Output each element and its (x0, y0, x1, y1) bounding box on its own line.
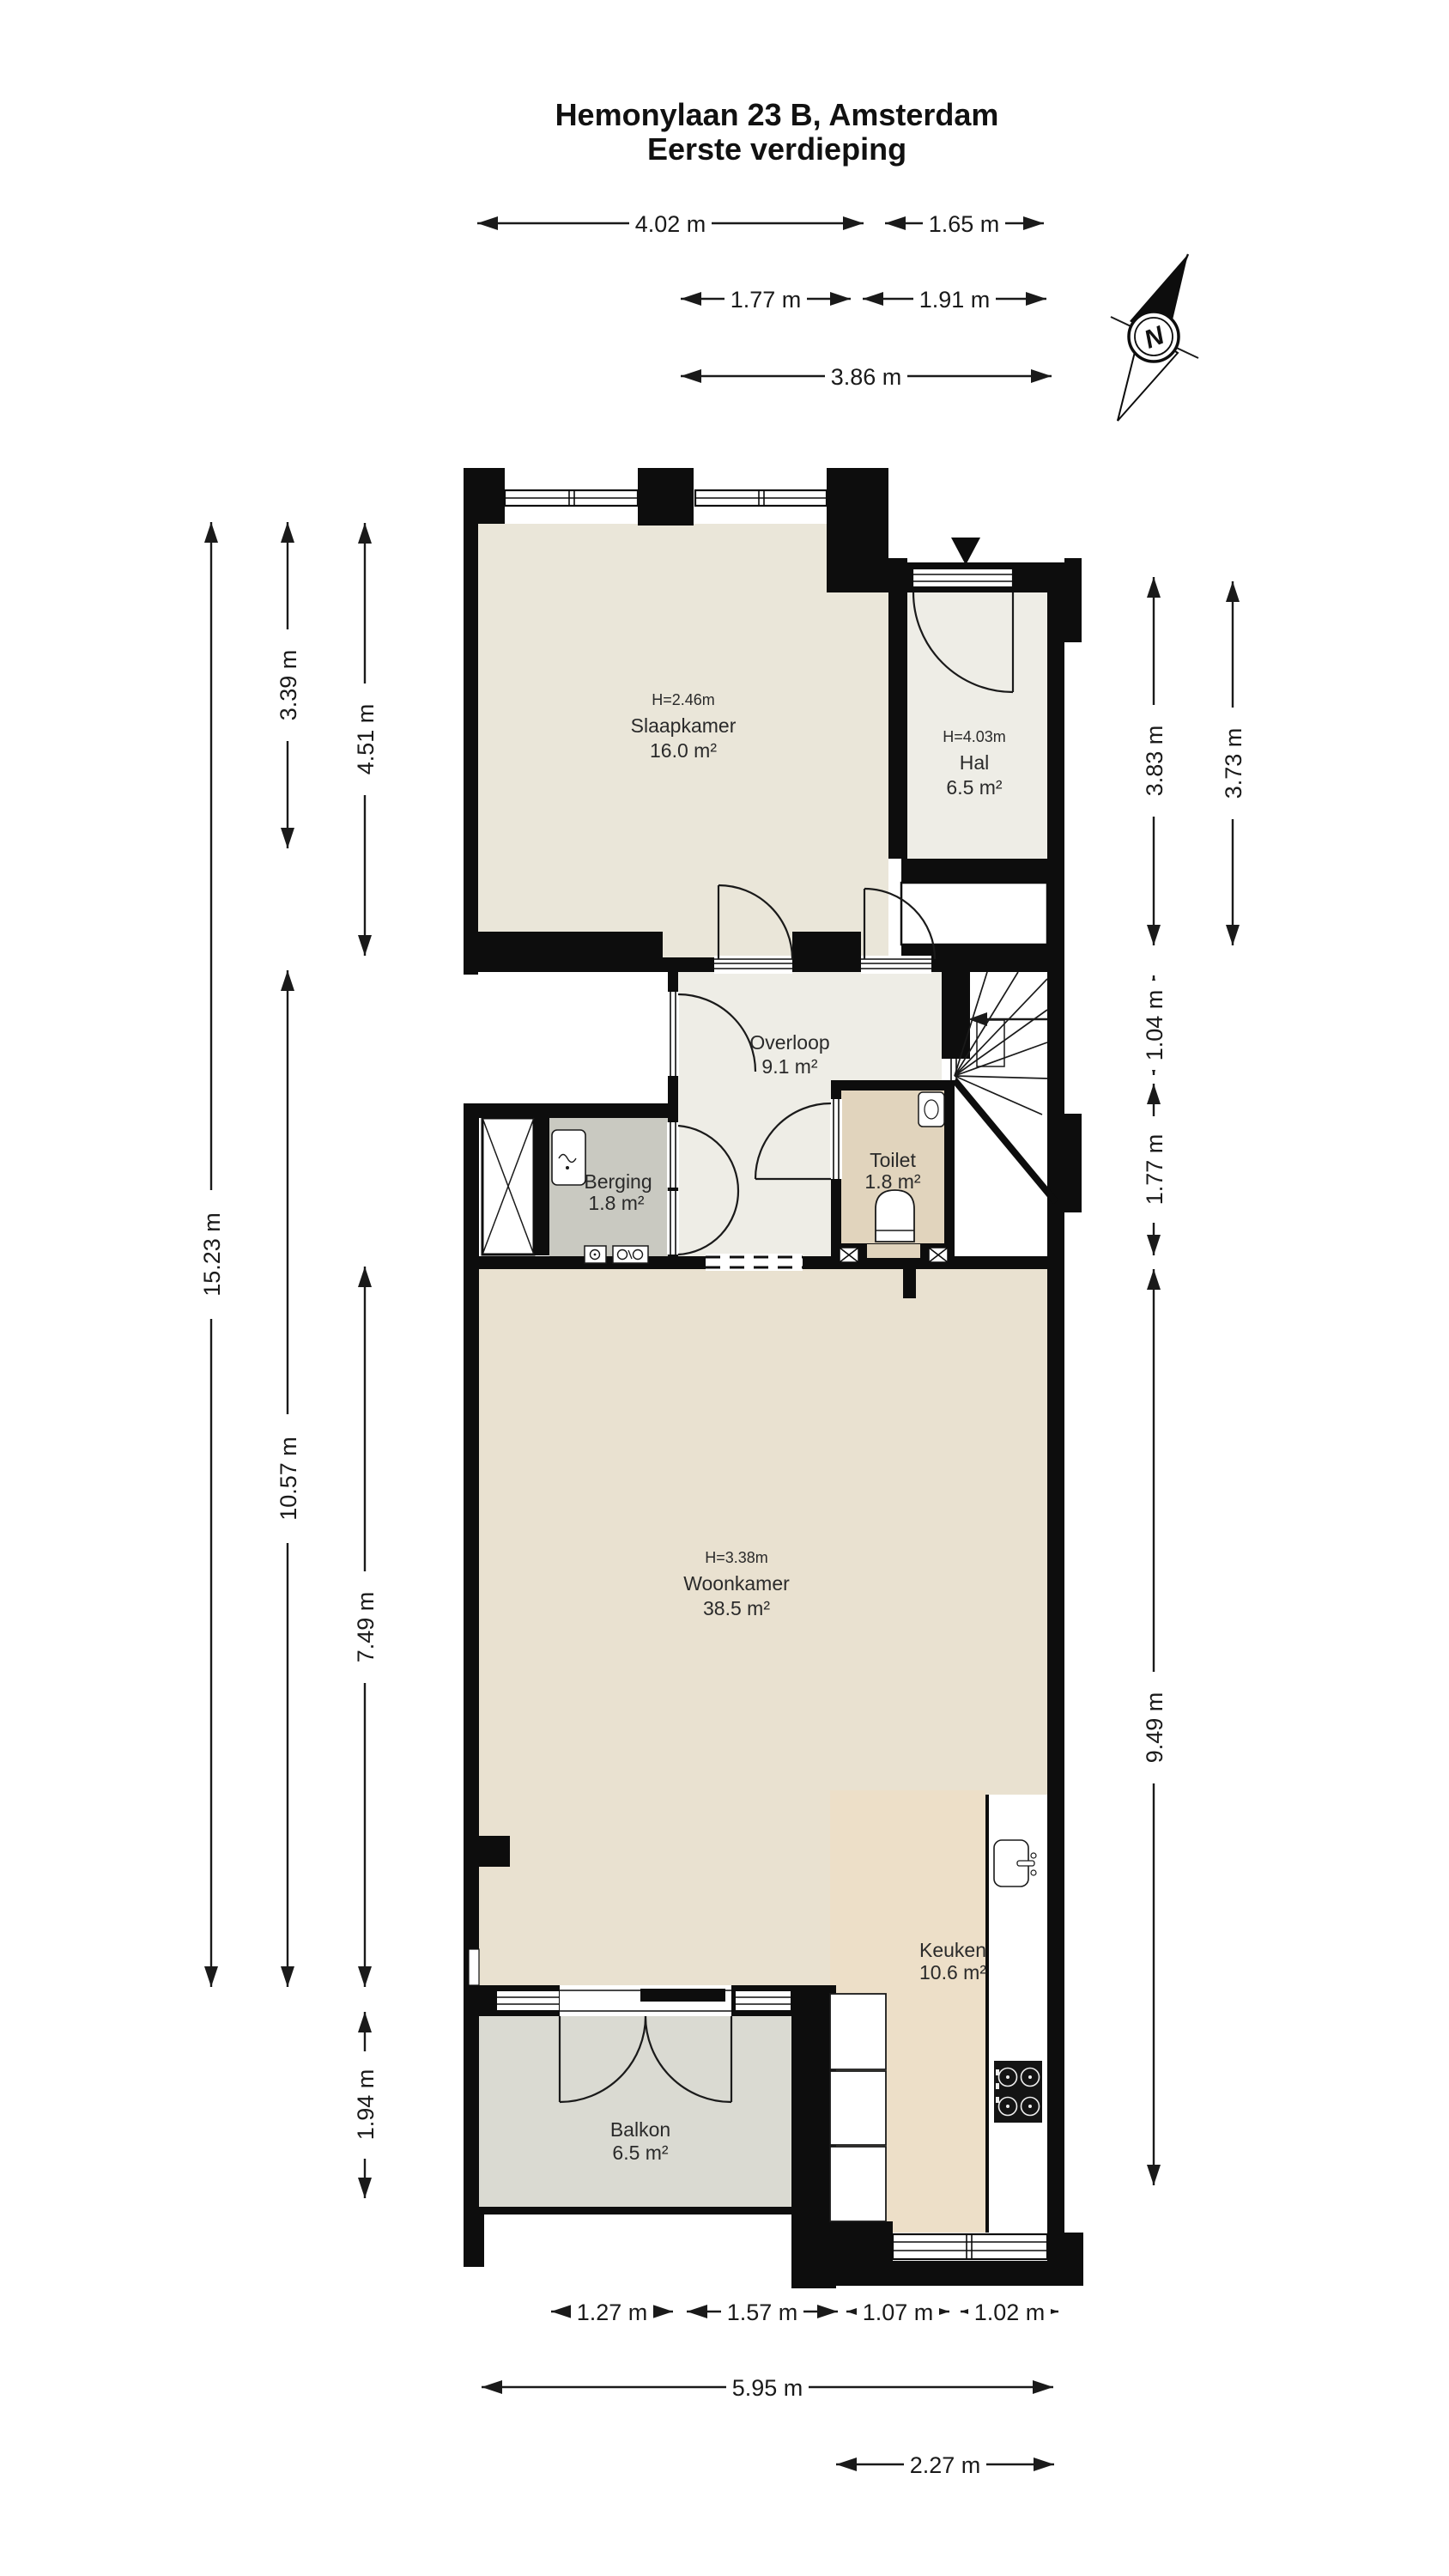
dim-bottom-157: 1.57 m (687, 2298, 838, 2325)
dim-left-339: 3.39 m (274, 522, 301, 848)
wall-stairs-left (942, 972, 970, 1059)
label-keuken: Keuken 10.6 m² (919, 1939, 986, 1984)
wall-balkon-left-stub (464, 2215, 484, 2267)
svg-text:Balkon: Balkon (610, 2118, 670, 2141)
dim-right-949: 9.49 m (1140, 1269, 1167, 2185)
svg-text:Keuken: Keuken (919, 1939, 986, 1961)
duct-marker-left (840, 1248, 858, 1262)
dim-right-383: 3.83 m (1140, 577, 1167, 945)
doorway-threshold-slaapkamer (714, 956, 792, 974)
wall-band-1 (663, 957, 714, 972)
svg-text:3.83 m: 3.83 m (1142, 726, 1167, 797)
balkon-railing (479, 2207, 791, 2215)
wall-slaapkamer-bottom (464, 932, 663, 972)
svg-text:1.65 m: 1.65 m (929, 211, 1000, 237)
wall-pier-mid-window (638, 468, 694, 526)
svg-text:1.27 m: 1.27 m (577, 2300, 648, 2325)
dim-bottom-227: 2.27 m (836, 2451, 1054, 2478)
shaft-icon (482, 1118, 534, 1255)
svg-text:1.8 m²: 1.8 m² (864, 1170, 921, 1193)
room-balkon-floor (479, 2016, 791, 2207)
wall-left-main (464, 1103, 479, 2215)
boiler-icon (552, 1130, 585, 1185)
dim-top-177: 1.77 m (681, 285, 851, 313)
meter-icon-left (585, 1246, 606, 1263)
floorplan-canvas: Hemonylaan 23 B, Amsterdam Eerste verdie… (0, 0, 1449, 2576)
kitchen-cabinets (830, 1994, 886, 2221)
wall-notch-left (469, 1949, 479, 1985)
wall-toilet-right (944, 1080, 955, 1243)
window-slaapkamer-left (505, 490, 638, 506)
stove-icon (994, 2061, 1042, 2123)
svg-text:5.95 m: 5.95 m (732, 2375, 803, 2401)
wall-left-top (464, 468, 478, 975)
dim-left-194: 1.94 m (351, 2012, 379, 2198)
svg-text:4.02 m: 4.02 m (635, 211, 706, 237)
doorway-threshold-hal (861, 956, 931, 974)
svg-text:9.1 m²: 9.1 m² (761, 1055, 818, 1078)
dim-left-451: 4.51 m (351, 523, 379, 956)
dim-left-749: 7.49 m (351, 1267, 379, 1987)
svg-text:6.5 m²: 6.5 m² (612, 2142, 669, 2164)
compass-icon: N (1111, 254, 1198, 421)
dim-right-104: 1.04 m (1140, 975, 1167, 1075)
svg-text:1.91 m: 1.91 m (919, 287, 991, 313)
svg-text:Berging: Berging (584, 1170, 652, 1193)
duct-marker-right (929, 1248, 948, 1262)
window-slaapkamer-right (695, 490, 827, 506)
wall-berging-top (479, 1103, 678, 1118)
wall-shaft-divider (534, 1118, 549, 1255)
meter-icon-right (613, 1246, 648, 1263)
toilet-sink-icon (919, 1092, 944, 1127)
wall-bump-bottomright (1064, 2233, 1083, 2286)
wall-pier-right (827, 468, 888, 592)
balkon-door-opening (560, 1985, 731, 2016)
wall-bottom-band (889, 2261, 1083, 2286)
wall-divider-slaapkamer-hal (888, 558, 907, 859)
svg-text:1.77 m: 1.77 m (1142, 1134, 1167, 1206)
toilet-floor-niche (867, 1244, 920, 1258)
svg-text:38.5 m²: 38.5 m² (703, 1597, 770, 1619)
svg-text:Slaapkamer: Slaapkamer (631, 714, 737, 737)
wall-hal-bottom (901, 859, 1064, 883)
dimensions-right: 3.83 m 3.73 m 1.04 m 1.77 m 9.49 m (1140, 577, 1246, 2185)
wall-bump-topright (1064, 558, 1082, 642)
dim-top-191: 1.91 m (863, 285, 1046, 313)
svg-text:16.0 m²: 16.0 m² (650, 739, 717, 762)
dim-left-1523: 15.23 m (197, 522, 225, 1987)
dim-top-165: 1.65 m (885, 210, 1044, 237)
dimensions-left: 15.23 m 3.39 m 4.51 m 10.57 m 7.49 m (197, 522, 379, 2198)
svg-text:Toilet: Toilet (870, 1149, 916, 1171)
window-hal-entry (912, 568, 1013, 587)
wall-pier-woonkamer-left (479, 1836, 510, 1867)
dim-right-177: 1.77 m (1140, 1084, 1167, 1255)
entrance-arrow-icon (951, 538, 980, 565)
svg-text:1.94 m: 1.94 m (353, 2069, 379, 2141)
dim-top-402: 4.02 m (477, 210, 864, 237)
svg-text:1.8 m²: 1.8 m² (588, 1192, 645, 1214)
wall-toilet-top (831, 1080, 955, 1091)
floorplan-page: Hemonylaan 23 B, Amsterdam Eerste verdie… (0, 0, 1449, 2576)
svg-text:2.27 m: 2.27 m (910, 2452, 981, 2478)
svg-text:1.04 m: 1.04 m (1142, 990, 1167, 1061)
dim-left-1057: 10.57 m (274, 970, 301, 1987)
svg-text:9.49 m: 9.49 m (1142, 1692, 1167, 1764)
dim-bottom-595: 5.95 m (482, 2373, 1053, 2401)
svg-text:H=3.38m: H=3.38m (705, 1549, 768, 1566)
doorway-toilet (830, 1099, 842, 1179)
wall-pier-between-doors (792, 932, 861, 972)
svg-text:1.57 m: 1.57 m (727, 2300, 798, 2325)
svg-text:3.73 m: 3.73 m (1221, 728, 1246, 799)
title-line1: Hemonylaan 23 B, Amsterdam (555, 97, 999, 132)
svg-text:10.6 m²: 10.6 m² (919, 1961, 986, 1984)
window-balkon-west (496, 1990, 560, 2011)
svg-text:Hal: Hal (960, 751, 990, 774)
dim-bottom-127: 1.27 m (551, 2298, 673, 2325)
svg-text:3.86 m: 3.86 m (831, 364, 902, 390)
svg-text:15.23 m: 15.23 m (199, 1212, 225, 1297)
plan-title: Hemonylaan 23 B, Amsterdam Eerste verdie… (555, 97, 999, 167)
svg-text:Woonkamer: Woonkamer (683, 1572, 790, 1595)
wall-stairs-corner (1064, 1114, 1082, 1212)
title-line2: Eerste verdieping (647, 131, 906, 167)
svg-text:3.39 m: 3.39 m (276, 650, 301, 721)
label-toilet: Toilet 1.8 m² (864, 1149, 921, 1193)
svg-text:7.49 m: 7.49 m (353, 1592, 379, 1663)
wall-right-main (1047, 562, 1064, 2261)
room-hal-floor (907, 592, 1047, 859)
window-keuken-bottom (893, 2234, 1047, 2259)
svg-text:1.77 m: 1.77 m (731, 287, 802, 313)
window-balkon-east (735, 1990, 791, 2011)
wall-stub-below-toilet (903, 1269, 916, 1298)
doorway-overloop-west (667, 992, 679, 1076)
wall-below-cabinets (830, 2221, 893, 2286)
stairs-direction-arrow-icon (968, 1012, 1047, 1026)
svg-text:H=4.03m: H=4.03m (943, 728, 1006, 745)
dim-bottom-102: 1.02 m (961, 2298, 1058, 2325)
dim-right-373: 3.73 m (1219, 581, 1246, 945)
label-balkon: Balkon 6.5 m² (610, 2118, 670, 2164)
svg-text:4.51 m: 4.51 m (353, 704, 379, 775)
dim-top-386: 3.86 m (681, 362, 1052, 390)
label-berging: Berging 1.8 m² (584, 1170, 652, 1214)
svg-text:1.07 m: 1.07 m (863, 2300, 934, 2325)
counter-edge (985, 1795, 989, 2233)
toilet-icon (876, 1190, 914, 1242)
svg-text:Overloop: Overloop (749, 1031, 829, 1054)
svg-text:10.57 m: 10.57 m (276, 1437, 301, 1521)
dimensions-top: 4.02 m 1.65 m 1.77 m 1.91 m 3.86 m (477, 210, 1052, 390)
open-passage-dashed (706, 1254, 803, 1271)
svg-text:6.5 m²: 6.5 m² (946, 776, 1003, 799)
dimensions-bottom: 1.27 m 1.57 m 1.07 m 1.02 m 5.95 m (482, 2298, 1058, 2478)
stair-landing-strip (901, 883, 1047, 945)
dim-bottom-107: 1.07 m (846, 2298, 949, 2325)
svg-text:H=2.46m: H=2.46m (652, 691, 715, 708)
svg-text:1.02 m: 1.02 m (974, 2300, 1046, 2325)
